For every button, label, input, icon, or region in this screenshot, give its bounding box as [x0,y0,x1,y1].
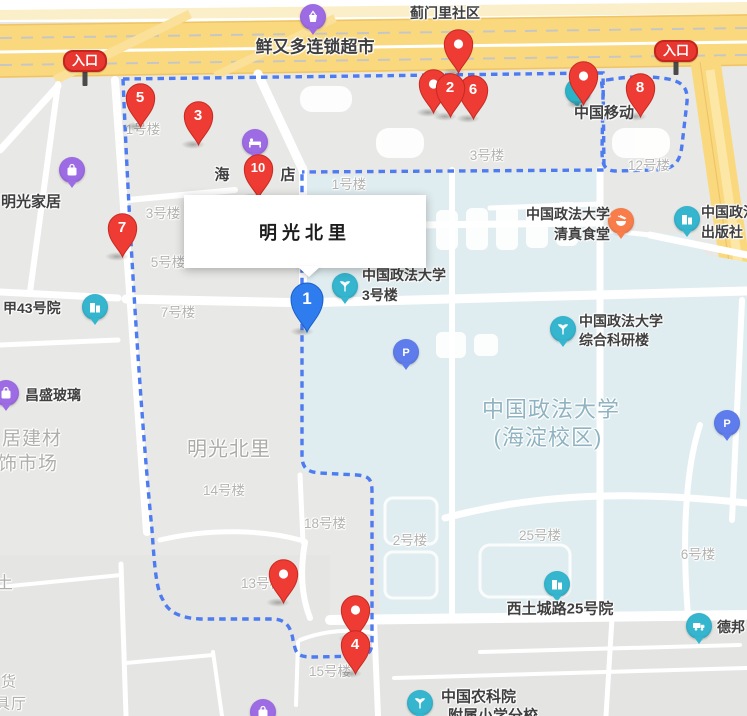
infobox-pointer [297,266,321,277]
parking-icon[interactable]: P [714,410,740,436]
poi-label-mingguang-furniture[interactable]: 明光家居 [1,191,61,212]
poi-label-debang-logistics[interactable]: 德邦 [717,617,745,637]
building-label: 18号楼 [304,512,346,532]
building-icon[interactable] [674,206,700,232]
building-label: 3号楼 [470,144,505,164]
entrance-sign-label: 入口 [654,40,698,62]
map-marker-pin-plain-bldg13[interactable] [268,559,299,605]
sprout-icon[interactable] [407,690,433,716]
building-label: 14号楼 [203,479,245,499]
basket-icon[interactable] [300,4,326,30]
entrance-sign: 入口 [63,50,107,72]
building-icon[interactable] [82,294,108,320]
marker-number: 2 [435,79,466,96]
bowl-icon[interactable] [608,208,634,234]
poi-label-cupl-building-3[interactable]: 中国政法大学 [362,265,446,285]
poi-label-cupl-halal-canteen[interactable]: 中国政法大学 [526,204,610,224]
poi-label-hotel[interactable]: 店 [280,164,295,185]
poi-label-hotel[interactable]: 海 [214,164,229,185]
entrance-sign: 入口 [654,40,698,62]
sprout-icon[interactable] [550,316,576,342]
marker-number: 5 [125,89,156,106]
poi-label-jimenli-community[interactable]: 蓟门里社区 [410,3,480,23]
poi-label-cupl-research-building[interactable]: 综合科研楼 [579,330,649,350]
map-marker-7[interactable]: 7 [107,213,138,259]
basket-icon[interactable] [300,4,326,30]
area-label: 土 [0,569,14,594]
building-icon[interactable] [82,294,108,320]
bag-icon[interactable] [59,157,85,183]
building-label: 2号楼 [393,529,428,549]
area-label: 具厅 [0,693,27,714]
sprout-icon[interactable] [407,690,433,716]
marker-number: 10 [243,160,274,175]
bag-icon[interactable] [250,699,276,716]
building-label: 6号楼 [681,543,716,563]
area-label: 货 [1,671,17,692]
infobox-title: 明光北里 [259,219,351,245]
sprout-icon[interactable] [332,273,358,299]
map-marker-2[interactable]: 2 [435,73,466,119]
building-icon[interactable] [544,571,570,597]
map-overlay: 1号楼3号楼5号楼7号楼1号楼3号楼12号楼14号楼18号楼13号楼15号楼2号… [0,0,747,716]
poi-label-cas-agriculture-academy[interactable]: 中国农科院 [441,686,516,707]
poi-label-xitucheng-road-25-yard[interactable]: 西土城路25号院 [507,598,614,619]
map-marker-5[interactable]: 5 [125,83,156,129]
poi-label-cupl-research-building[interactable]: 中国政法大学 [579,311,663,331]
marker-number: 4 [340,636,371,653]
poi-label-cupl-halal-canteen[interactable]: 清真食堂 [554,224,610,244]
marker-number: 1 [289,289,325,309]
bag-icon[interactable] [0,380,19,406]
svg-text:P: P [723,418,730,430]
bag-icon[interactable] [59,157,85,183]
building-label: 7号楼 [161,301,196,321]
truck-icon[interactable] [686,613,712,639]
map-marker-8[interactable]: 8 [625,73,656,119]
building-label: 5号楼 [151,251,186,271]
truck-icon[interactable] [686,613,712,639]
sprout-icon[interactable] [550,316,576,342]
poi-label-cupl-press[interactable]: 出版社 [701,222,743,242]
parking-icon[interactable]: P [393,339,419,365]
poi-label-cas-agriculture-academy[interactable]: 附属小学分校 [448,705,538,716]
parking-icon[interactable]: P [714,410,740,436]
building-label: 25号楼 [519,524,561,544]
marker-number: 3 [183,107,214,124]
bed-icon[interactable] [242,129,268,155]
building-label: 12号楼 [628,154,670,174]
sprout-icon[interactable] [332,273,358,299]
area-label: 居建材 [2,424,62,451]
poi-label-xianyouduo-supermarket[interactable]: 鲜又多连锁超市 [256,33,375,58]
map-marker-10[interactable]: 10 [243,154,274,200]
map-marker-4[interactable]: 4 [340,630,371,676]
bag-icon[interactable] [0,380,19,406]
building-icon[interactable] [544,571,570,597]
poi-label-cupl-press[interactable]: 中国政法大学 [701,202,747,222]
map-marker-1[interactable]: 1 [289,282,325,334]
bowl-icon[interactable] [608,208,634,234]
marker-number: 8 [625,79,656,96]
marker-number: 7 [107,219,138,236]
parking-icon[interactable]: P [393,339,419,365]
area-label: 明光北里 [187,433,271,462]
entrance-sign-pole [673,60,678,75]
map-canvas[interactable]: 1号楼3号楼5号楼7号楼1号楼3号楼12号楼14号楼18号楼13号楼15号楼2号… [0,0,747,716]
area-label: (海淀校区) [494,420,603,452]
map-marker-3[interactable]: 3 [183,101,214,147]
entrance-sign-pole [82,70,87,86]
poi-label-jia-43-yard[interactable]: 甲43号院 [3,298,61,318]
area-label: 饰市场 [0,449,58,476]
place-infobox[interactable]: 明光北里 [184,195,426,268]
building-label: 3号楼 [146,202,181,222]
map-marker-pin-plain-mobile[interactable] [568,61,599,107]
entrance-sign-label: 入口 [63,50,107,72]
svg-text:P: P [402,347,409,359]
bag-icon[interactable] [250,699,276,716]
poi-label-changsheng-glass[interactable]: 昌盛玻璃 [25,385,81,405]
bed-icon[interactable] [242,129,268,155]
poi-label-cupl-building-3[interactable]: 3号楼 [362,285,398,305]
building-icon[interactable] [674,206,700,232]
building-label: 1号楼 [332,173,367,193]
